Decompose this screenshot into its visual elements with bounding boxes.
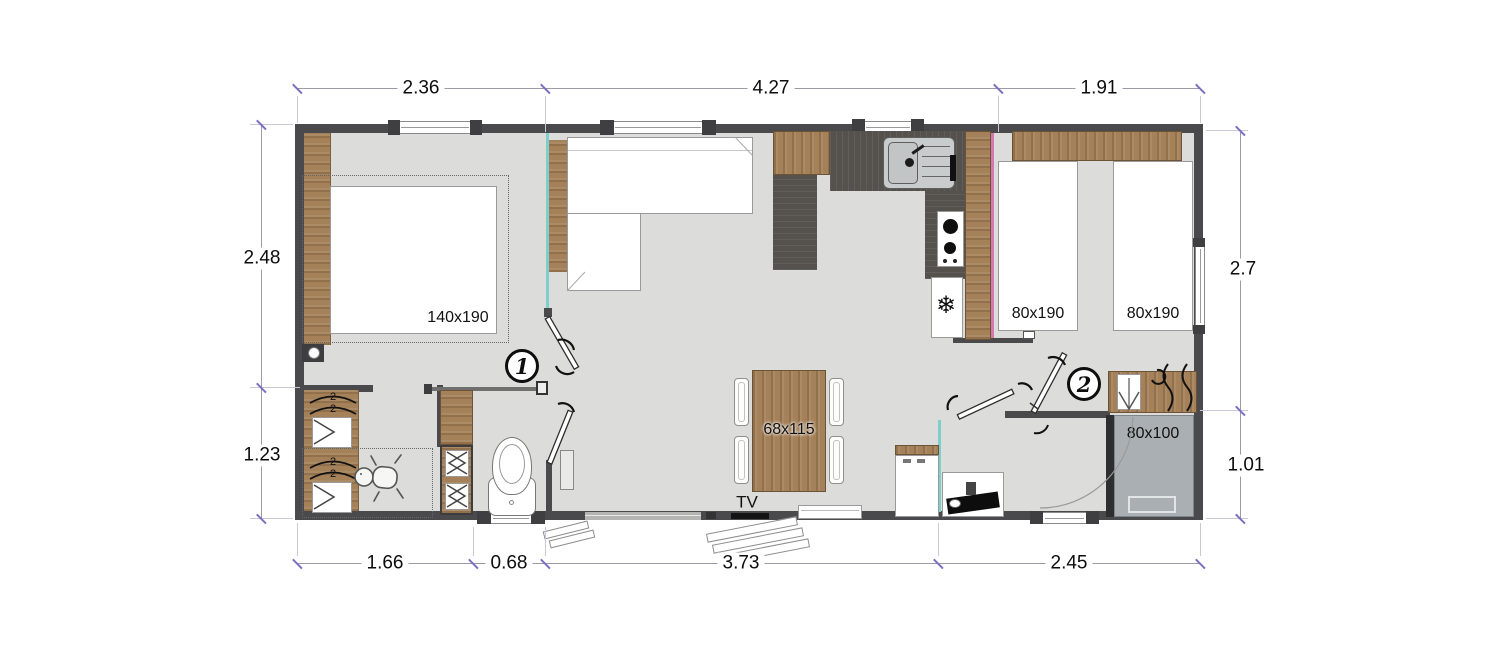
dim-label: 4.27 [748, 78, 795, 100]
counter-accessory [950, 155, 956, 181]
chair-icon [829, 436, 844, 484]
shower-wall-edge [1106, 415, 1114, 517]
dim-label: 1.91 [1076, 78, 1123, 100]
door-latch-icon [1023, 331, 1035, 339]
dim-ext [938, 523, 939, 556]
toilet-seat [499, 444, 525, 484]
kitchen-cabinet-wood [773, 131, 830, 175]
window-living-icon [612, 121, 704, 134]
sliding-door-latch-icon [536, 381, 548, 395]
shelf-box [445, 483, 469, 510]
sofa-chaise [567, 213, 641, 291]
closet-vent [903, 459, 911, 463]
entry-door-opening [585, 512, 701, 520]
bed-size-label: 80x190 [1127, 305, 1180, 323]
shower-step [1128, 496, 1176, 513]
window-cap [470, 120, 482, 135]
hob-burner-icon [943, 219, 958, 234]
dim-label: 2.36 [398, 78, 445, 100]
closet-vent [917, 459, 925, 463]
toilet-button [509, 500, 514, 505]
sofa-seat [567, 137, 753, 214]
dim-ext [250, 124, 293, 125]
dim-label: 2.45 [1046, 553, 1093, 575]
tv-icon [731, 513, 769, 519]
sofa-side-panel [549, 140, 567, 272]
washbasin-icon [1117, 374, 1141, 410]
floor-plan-canvas: 140x190 ❄ 80x190 80x190 68x115 TV 2 [0, 0, 1497, 650]
dim-label: 1.66 [362, 553, 409, 575]
dim-label: 0.68 [486, 553, 533, 575]
dim-label: 3.73 [718, 553, 765, 575]
bunk-capacity-label: 2 [330, 403, 336, 415]
shelf-box [445, 450, 469, 477]
wc-cabinet-upper [440, 390, 473, 445]
kitchen-counter-left [773, 175, 817, 270]
hob-knob [943, 259, 947, 263]
dim-ext [473, 527, 474, 556]
cot-space-dotted [302, 448, 433, 518]
dim-label: 1.23 [239, 445, 286, 467]
table-size-label: 68x115 [763, 421, 814, 439]
dim-ext [1200, 523, 1201, 556]
chair-icon [829, 378, 844, 426]
bench-icon [798, 505, 862, 519]
bed-size-label: 80x190 [1012, 305, 1065, 323]
dim-ext [1200, 96, 1201, 123]
marker-number: 2 [1077, 372, 1092, 397]
dim-ext [297, 96, 298, 123]
window-cap [1193, 325, 1205, 334]
window-shower-room-icon [1042, 512, 1087, 524]
wall-accessory [706, 512, 716, 519]
sliding-door-end [424, 384, 432, 394]
door-marker-2: 2 [1067, 367, 1101, 401]
sink-drainer [922, 176, 950, 177]
dim-label: 2.7 [1225, 259, 1261, 281]
window-twin-bedroom-icon [1195, 246, 1205, 326]
dim-ext [250, 387, 300, 388]
kitchen-tall-unit [965, 131, 991, 340]
dim-ext [545, 527, 546, 556]
heater-gauge [949, 499, 961, 508]
marker-number: 1 [515, 354, 530, 379]
sink-drainer [922, 146, 950, 147]
bunk-bed-lower-icon [312, 417, 352, 448]
chair-icon [734, 436, 749, 484]
fridge-snowflake-icon: ❄ [936, 294, 960, 318]
closet-top [895, 445, 939, 455]
heater-valve [966, 482, 976, 495]
window-master-icon [398, 121, 472, 134]
closet-a [895, 455, 939, 517]
dim-label: 1.01 [1223, 455, 1270, 477]
window-cap [1030, 511, 1043, 524]
window-cap [1086, 511, 1099, 524]
headboard-shelf [1012, 131, 1182, 161]
window-cap [1193, 238, 1205, 247]
dim-ext [297, 523, 298, 556]
window-cap [600, 120, 614, 135]
dim-ext [545, 96, 546, 132]
wall-shower-room-top [1005, 411, 1110, 418]
hob-burner-icon [944, 242, 956, 254]
chair-icon [734, 378, 749, 426]
lamp-icon [308, 347, 320, 359]
dim-ext [998, 96, 999, 132]
partition-twin-bedroom [991, 133, 994, 340]
bunk-capacity-label: 2 [330, 391, 336, 403]
hob-knob [953, 259, 957, 263]
sink-drainer [922, 156, 950, 157]
wall-wc-right [546, 460, 552, 511]
wc-wall-cabinet [560, 450, 574, 490]
faucet-icon [905, 158, 914, 167]
sink-drainer [922, 166, 950, 167]
dim-ext [250, 518, 293, 519]
dim-label: 2.48 [239, 248, 286, 270]
window-cap [702, 120, 716, 135]
bed-size-label: 140x190 [427, 309, 488, 327]
shower-size-label: 80x100 [1127, 425, 1180, 443]
window-cap [388, 120, 400, 135]
door-marker-1: 1 [505, 349, 539, 383]
wall-post [544, 308, 552, 317]
